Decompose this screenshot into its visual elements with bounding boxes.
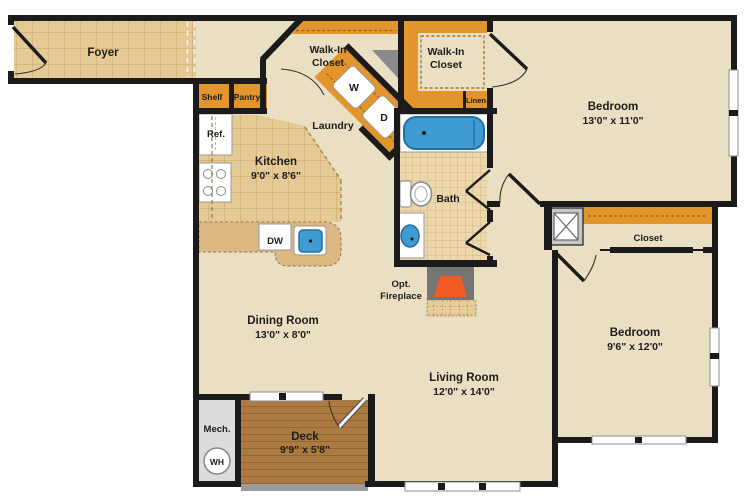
water-heater-label: WH (210, 457, 224, 467)
foyer-label: Foyer (87, 47, 119, 59)
fireplace-label-1: Opt. (392, 279, 411, 290)
closet-label: Closet (633, 233, 663, 244)
bedroom-top-dims: 13'0" x 11'0" (582, 115, 643, 127)
kitchen-sink (294, 226, 326, 255)
bedroom-top-label: Bedroom (588, 101, 638, 113)
floor-plan-drawing: Foyer Walk-In Closet Walk-In Closet Shel… (0, 0, 746, 499)
window-bedroom-right-south (592, 436, 686, 444)
laundry-label: Laundry (312, 120, 354, 132)
bathtub (400, 114, 488, 152)
floor-plan: Foyer Walk-In Closet Walk-In Closet Shel… (0, 0, 746, 499)
bath-vanity (397, 213, 424, 258)
toilet (400, 181, 432, 207)
deck-label: Deck (291, 431, 319, 443)
deck-dims: 9'9" x 5'8" (280, 444, 330, 456)
dishwasher-label: DW (267, 236, 283, 247)
pantry-label: Pantry (234, 92, 261, 102)
bath-label: Bath (436, 193, 459, 205)
linen-label: Linen (466, 96, 486, 105)
window-dining-deck (250, 392, 323, 401)
walk-in-closet-1-label-1: Walk-In (310, 44, 347, 56)
shelf-label: Shelf (202, 92, 223, 102)
kitchen-label: Kitchen (255, 156, 297, 168)
dining-room-label: Dining Room (247, 315, 319, 327)
living-room-dims: 12'0" x 14'0" (433, 386, 495, 398)
window-bedroom-top-east (729, 70, 738, 156)
window-bedroom-right-east (710, 328, 719, 386)
mech-label: Mech. (204, 424, 231, 435)
closet-shelving (583, 207, 712, 224)
walk-in-closet-2-label-2: Closet (430, 59, 463, 71)
walk-in-closet-2-label-1: Walk-In (428, 46, 465, 58)
dryer-label: D (380, 112, 388, 124)
window-living-room (405, 482, 520, 491)
bedroom-right-dims: 9'6" x 12'0" (607, 341, 663, 353)
walk-in-closet-1-shelving (292, 21, 398, 34)
stove (199, 163, 231, 202)
dining-room-dims: 13'0" x 8'0" (255, 329, 311, 341)
mechanical-chase (549, 208, 583, 245)
fireplace-label-2: Fireplace (380, 291, 422, 302)
walk-in-closet-1-label-2: Closet (312, 57, 345, 69)
kitchen-dims: 9'0" x 8'6" (251, 170, 301, 182)
fireplace (427, 267, 476, 316)
refrigerator-label: Ref. (207, 129, 225, 140)
washer-label: W (349, 82, 359, 94)
bedroom-right-label: Bedroom (610, 327, 660, 339)
living-room-label: Living Room (429, 372, 499, 384)
